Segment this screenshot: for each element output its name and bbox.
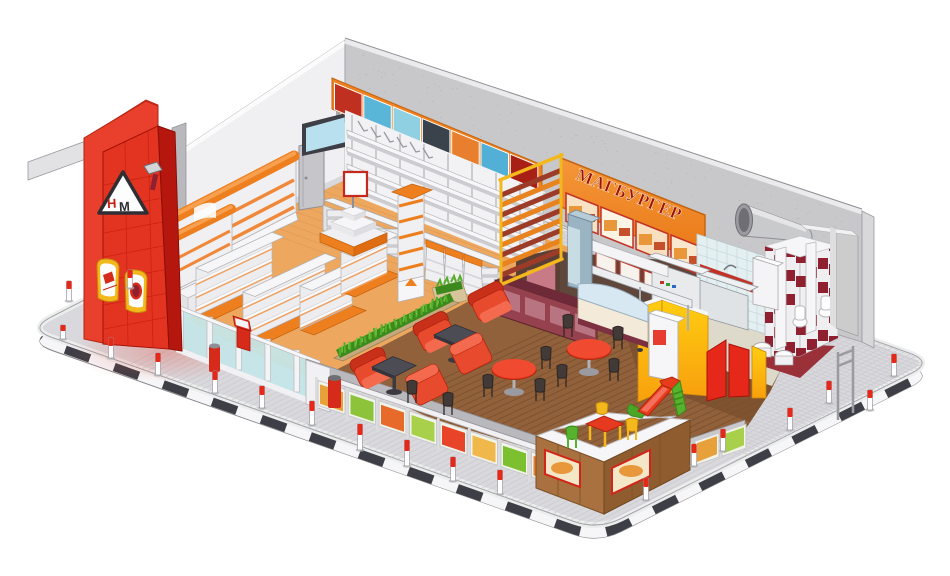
svg-text:М: М: [119, 199, 131, 215]
svg-text:Н: Н: [107, 196, 117, 211]
